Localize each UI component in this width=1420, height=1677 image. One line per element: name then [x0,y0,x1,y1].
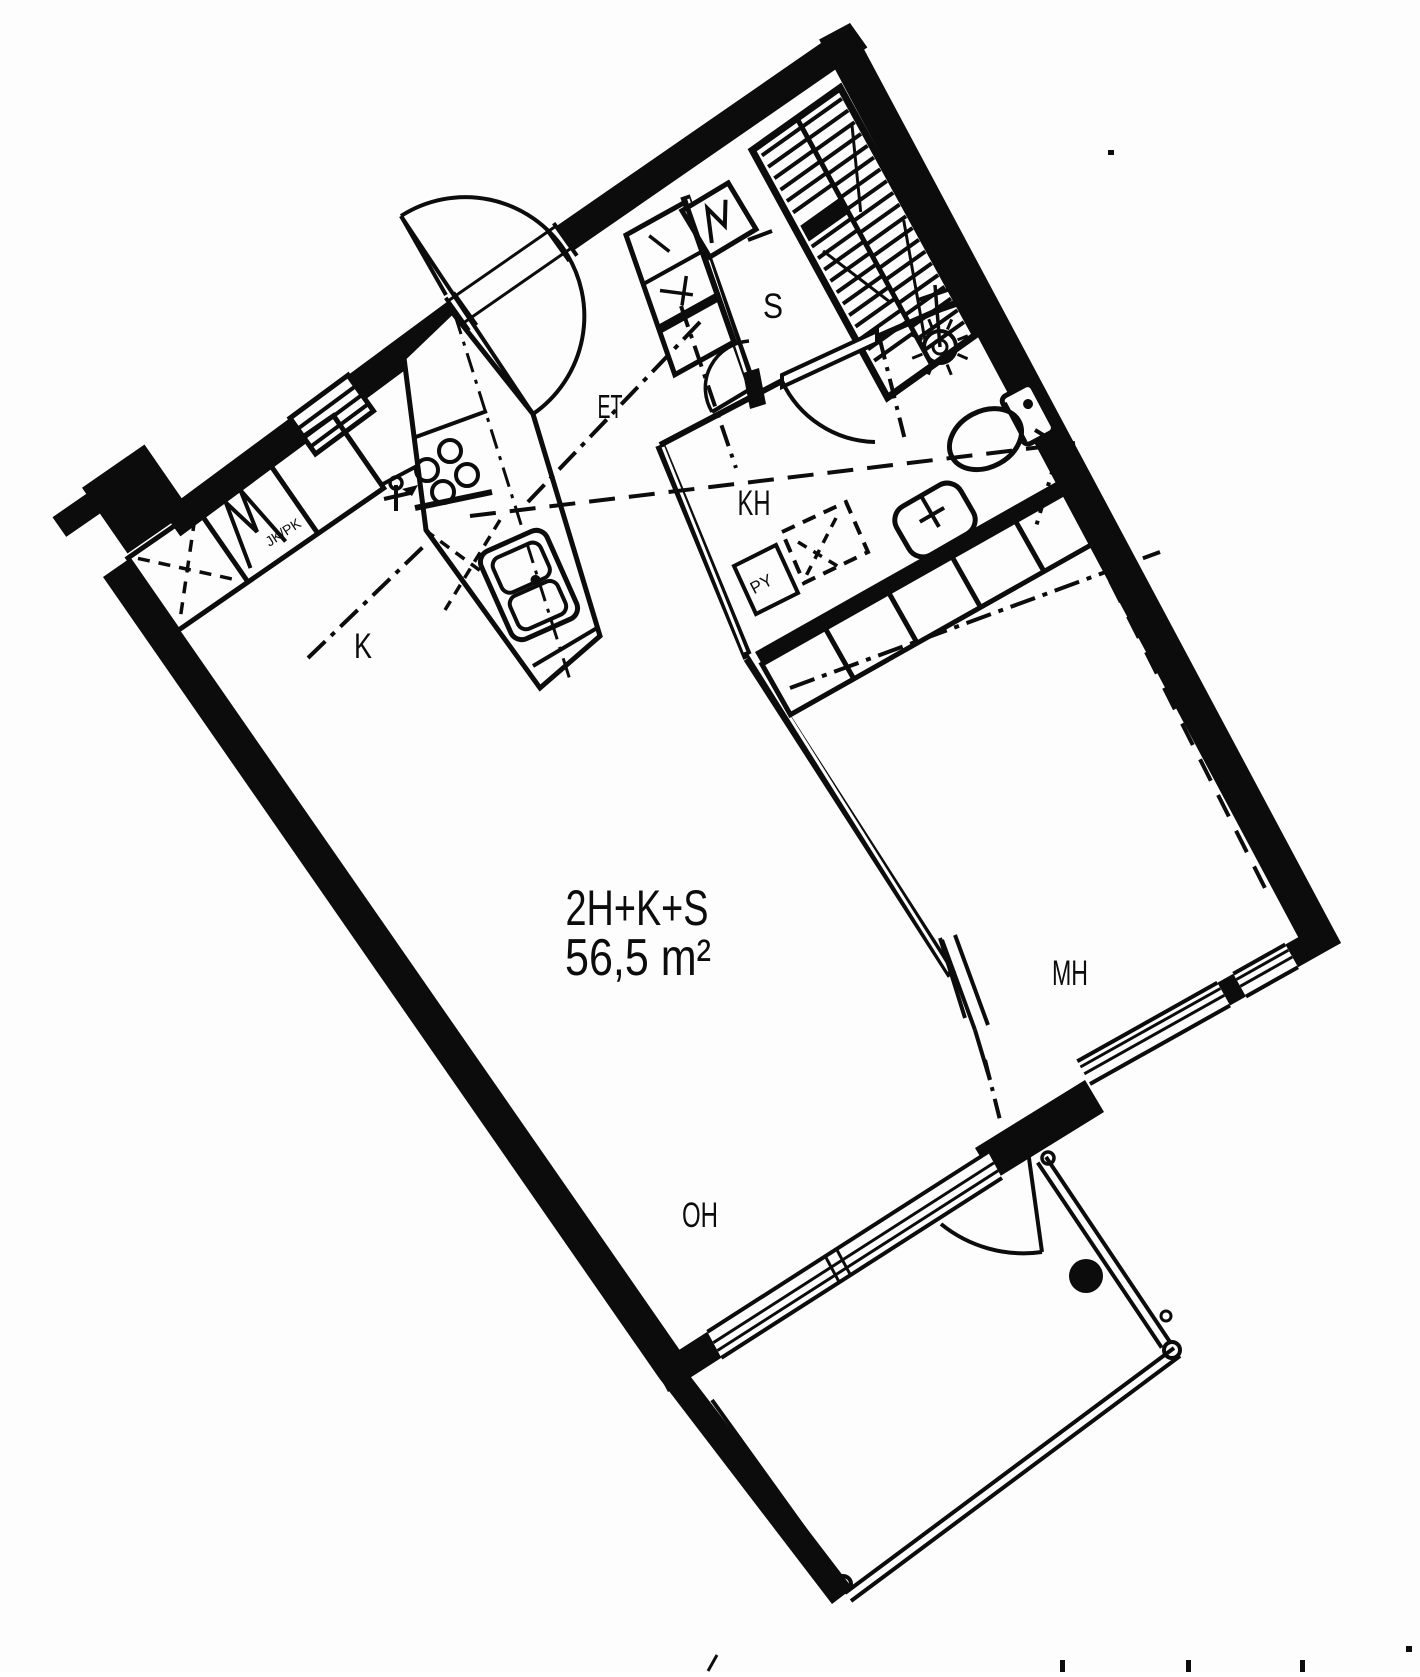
svg-text:K: K [354,627,372,666]
svg-text:KH: KH [738,484,771,523]
svg-text:MH: MH [1052,954,1088,993]
svg-text:OH: OH [682,1196,718,1235]
svg-text:2H+K+S: 2H+K+S [566,880,709,936]
svg-text:S: S [763,287,783,326]
svg-text:56,5 m²: 56,5 m² [565,929,711,987]
svg-text:ET: ET [598,388,623,425]
